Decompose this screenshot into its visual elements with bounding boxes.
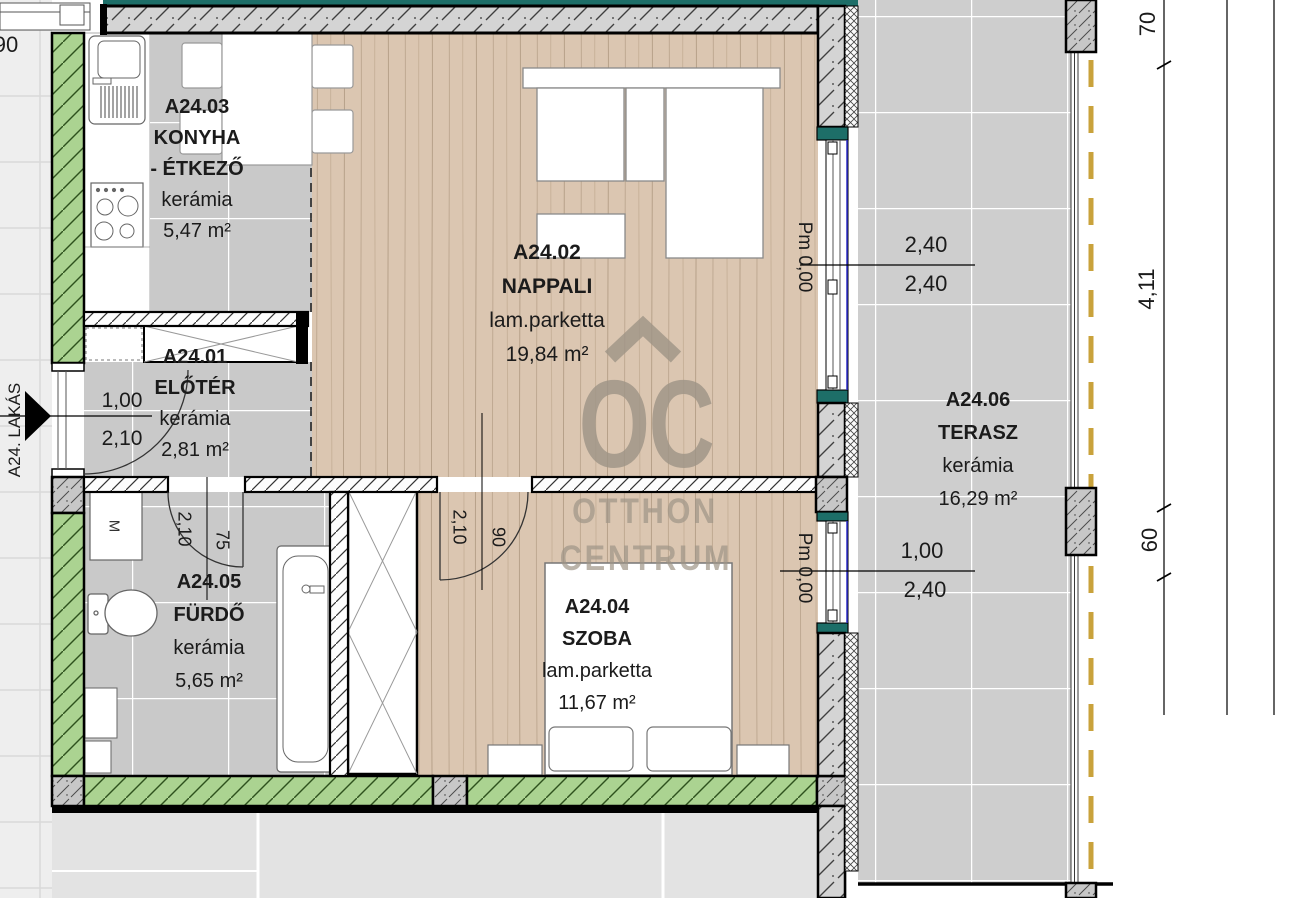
wall-hall-bath bbox=[84, 477, 168, 492]
kitchen-sink-icon bbox=[89, 36, 145, 124]
terrace-pillar bbox=[1066, 883, 1096, 898]
wall-exterior-top bbox=[103, 6, 818, 33]
room-label-konyha: A24.03 KONYHA - ÉTKEZŐ kerámia 5,47 m² bbox=[150, 92, 243, 247]
stove-icon bbox=[91, 183, 143, 247]
room-label-terasz: A24.06 TERASZ kerámia 16,29 m² bbox=[938, 384, 1018, 516]
wall-insulated-left-upper bbox=[52, 33, 84, 363]
chair bbox=[312, 110, 353, 153]
level-mark-living: Pm 0,00 bbox=[793, 222, 815, 293]
dim-entry-door-height: 2,10 bbox=[102, 427, 143, 451]
room-label-eloter: A24.01 ELŐTÉR kerámia 2,81 m² bbox=[154, 342, 235, 466]
dim-entry-door-width: 1,00 bbox=[102, 389, 143, 413]
dim-bedroom-door-height: 2,10 bbox=[449, 509, 470, 544]
nightstand bbox=[737, 745, 789, 775]
dim-living-window-width: 2,40 bbox=[905, 232, 948, 258]
floor-plan: OC OTTHON CENTRUM A24.03 KONYHA - ÉTKEZŐ… bbox=[0, 0, 1290, 898]
neighbor-unit-top bbox=[0, 3, 90, 30]
watermark-line1: OTTHON bbox=[572, 492, 718, 532]
dim-right-top: 70 bbox=[1135, 12, 1161, 36]
watermark-logo: OC bbox=[579, 354, 714, 496]
room-label-furdo: A24.05 FÜRDŐ kerámia 5,65 m² bbox=[173, 566, 244, 698]
dim-living-window-height: 2,40 bbox=[905, 271, 948, 297]
watermark-line2: CENTRUM bbox=[560, 539, 732, 579]
room-label-szoba: A24.04 SZOBA lam.parketta 11,67 m² bbox=[542, 591, 652, 719]
nightstand bbox=[488, 745, 542, 775]
level-mark-bedroom: Pm 0,00 bbox=[793, 533, 815, 604]
dim-bath-door-width: 75 bbox=[212, 530, 233, 550]
terrace-pillar bbox=[1066, 0, 1096, 52]
entry-label: A24. LAKÁS bbox=[5, 383, 25, 478]
chair bbox=[312, 45, 353, 88]
wall-exterior-right bbox=[818, 6, 845, 127]
wall-insulated-bottom bbox=[84, 776, 433, 806]
pillow bbox=[549, 727, 633, 771]
room-label-nappali: A24.02 NAPPALI lam.parketta 19,84 m² bbox=[489, 236, 605, 372]
bathtub-icon bbox=[277, 546, 334, 772]
chair bbox=[182, 43, 222, 88]
wall-insulated-left-lower bbox=[52, 513, 84, 776]
terrace-pillar bbox=[1066, 488, 1096, 555]
wall-kitchen-hall bbox=[84, 312, 308, 326]
dim-right-lower: 60 bbox=[1137, 528, 1163, 552]
window-sill-teal bbox=[817, 127, 848, 140]
dim-neighbor-partial: 90 bbox=[0, 32, 18, 58]
dim-bath-door-height: 2,10 bbox=[174, 511, 195, 546]
window-bedroom bbox=[826, 521, 848, 623]
wardrobe bbox=[348, 490, 417, 774]
washing-machine-label: M bbox=[106, 520, 123, 533]
dim-bedroom-window-height: 2,40 bbox=[904, 577, 947, 603]
neighbor-unit-bottom bbox=[52, 812, 847, 898]
toilet-icon bbox=[88, 590, 157, 636]
wall-bath-bedroom bbox=[330, 492, 348, 776]
dim-bedroom-door-width: 90 bbox=[488, 527, 509, 547]
dim-right-main: 4,11 bbox=[1134, 268, 1160, 309]
dim-bedroom-window-width: 1,00 bbox=[901, 538, 944, 564]
pillow bbox=[647, 727, 731, 771]
